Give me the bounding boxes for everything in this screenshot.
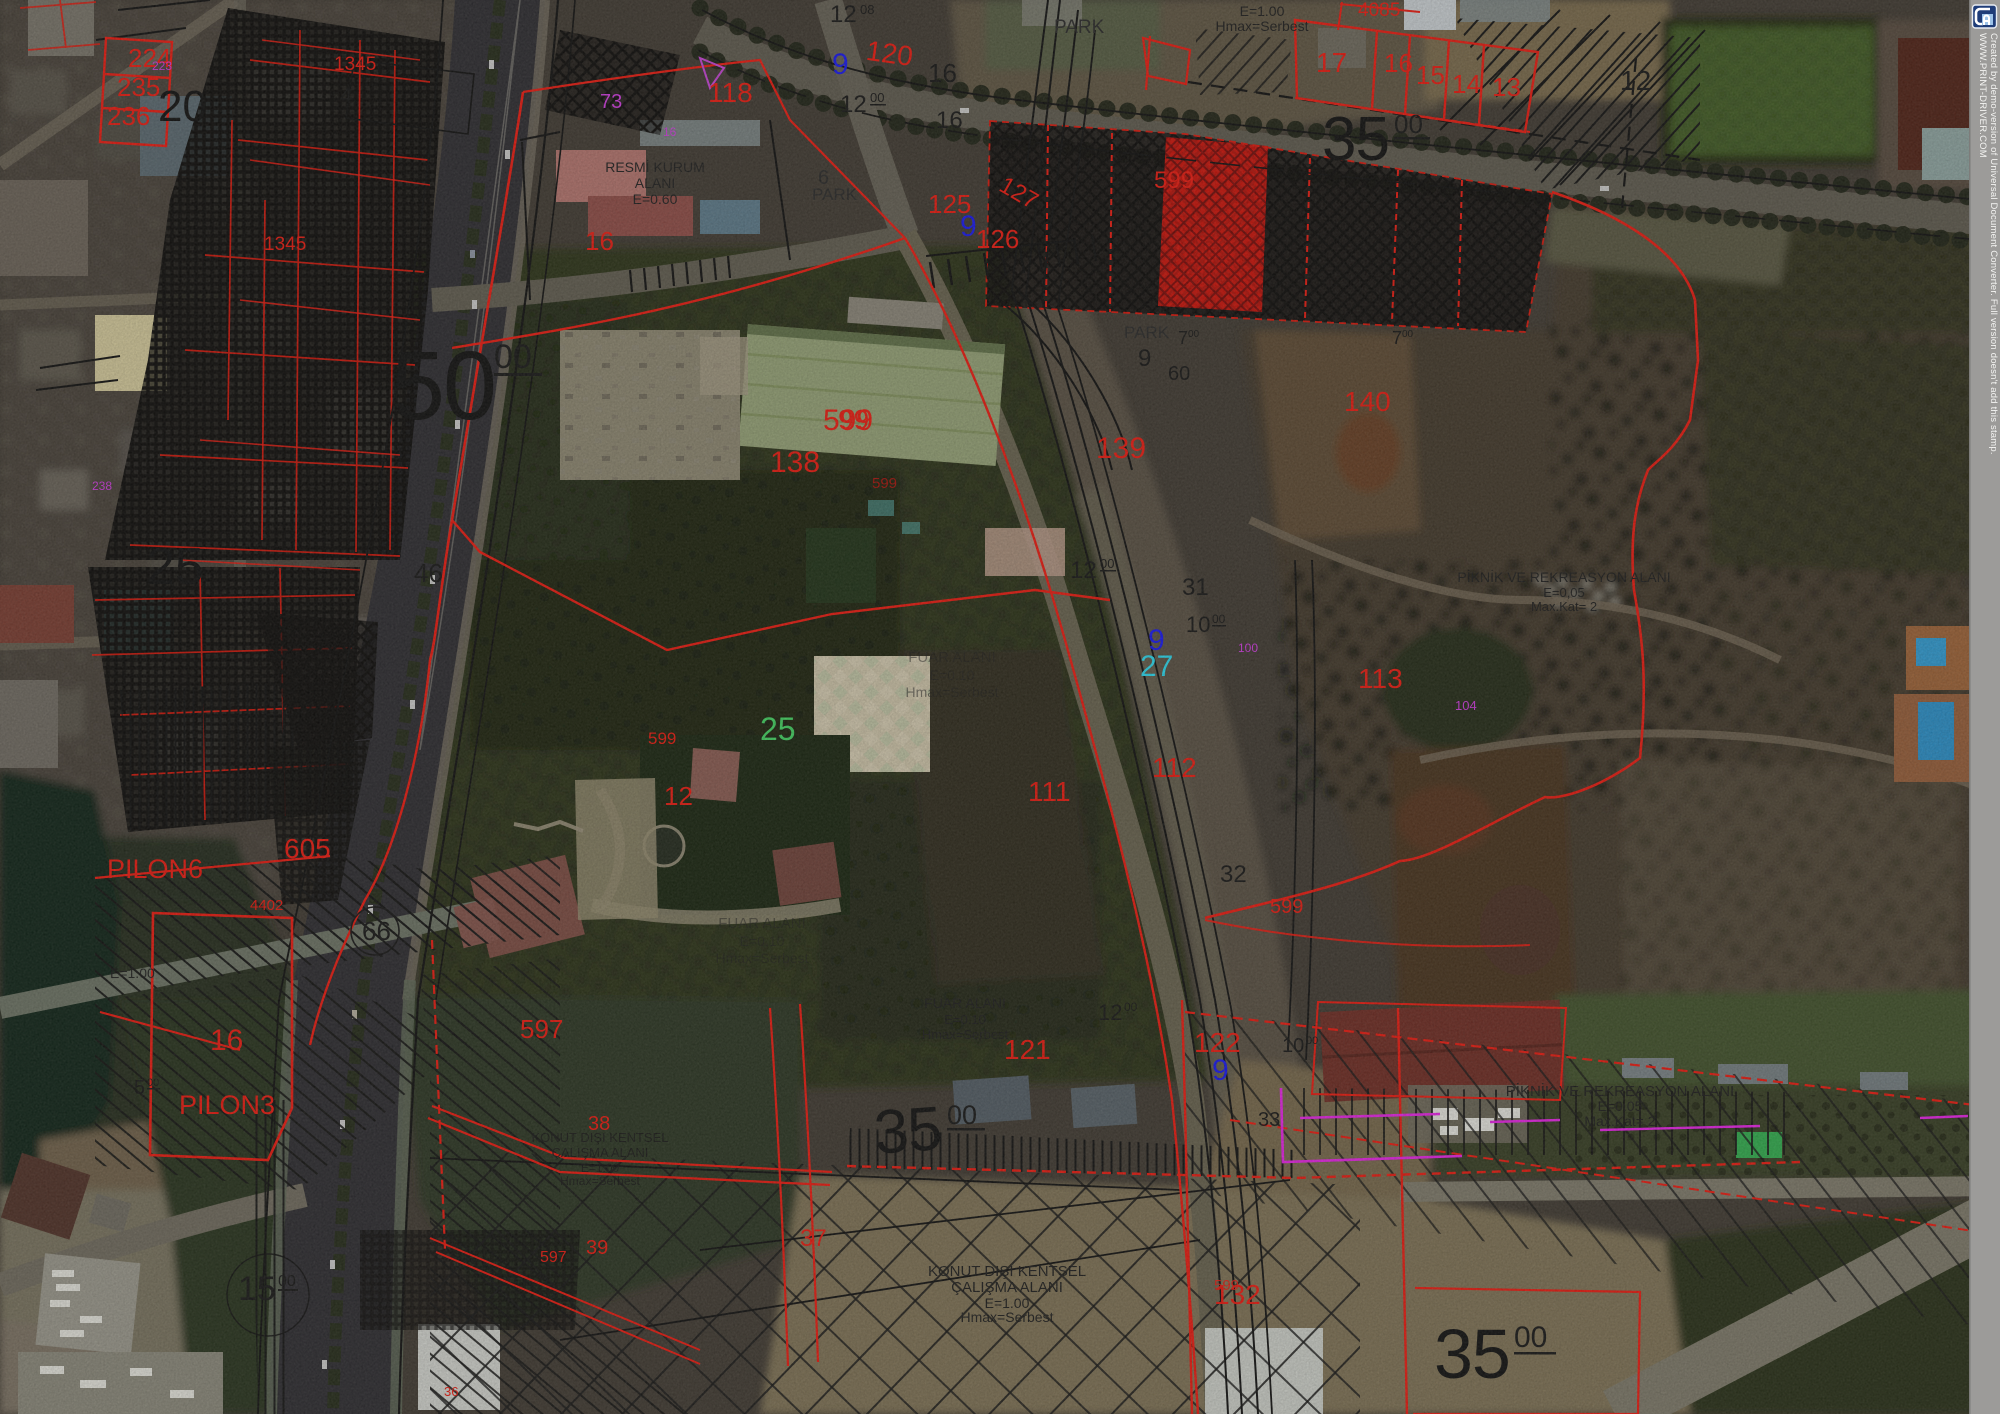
svg-text:Created by demo-version of Uni: Created by demo-version of Universal Doc… xyxy=(1988,33,1999,455)
svg-text:WWW.PRINT-DRIVER.COM: WWW.PRINT-DRIVER.COM xyxy=(1977,33,1988,158)
